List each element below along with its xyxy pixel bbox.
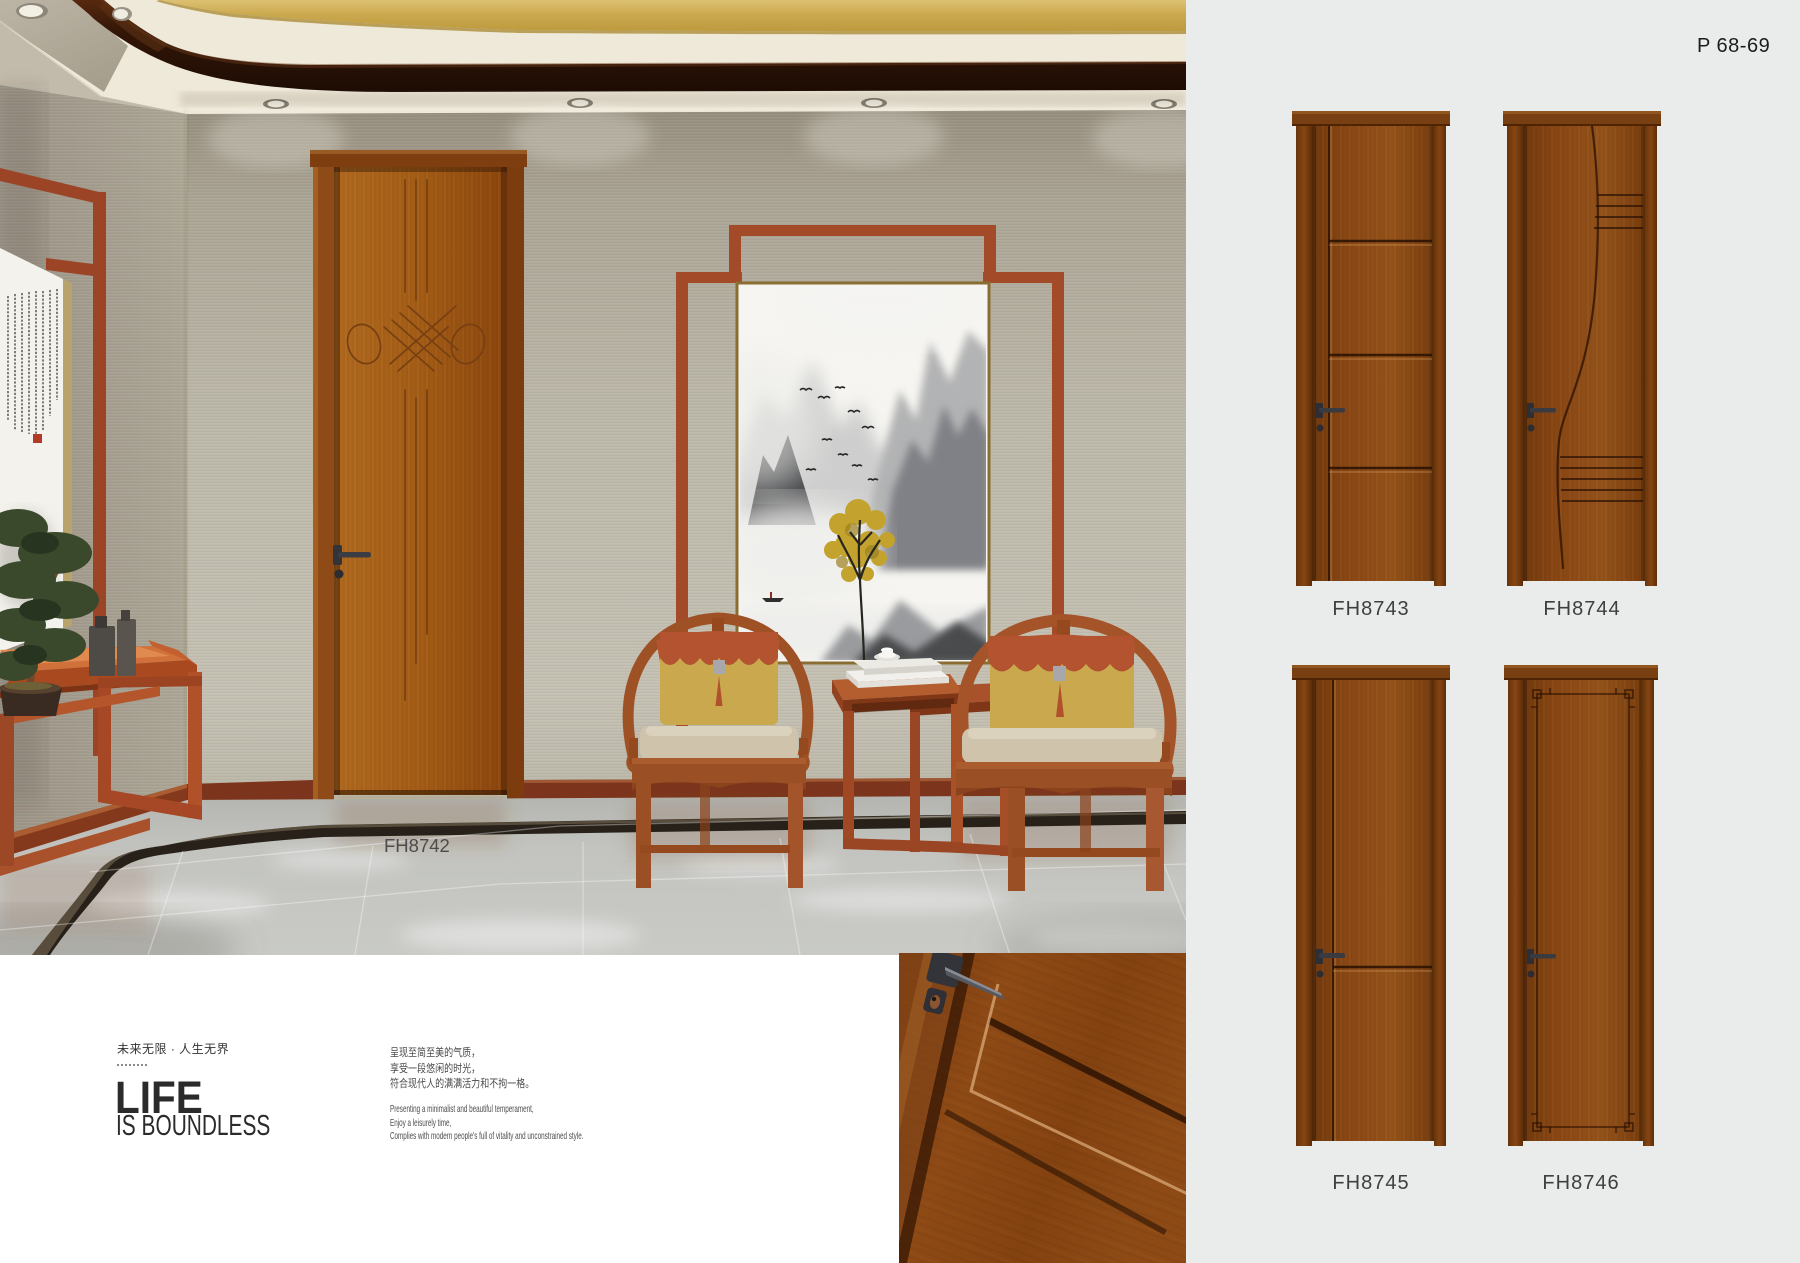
svg-text:FH8742: FH8742 [384, 835, 450, 856]
